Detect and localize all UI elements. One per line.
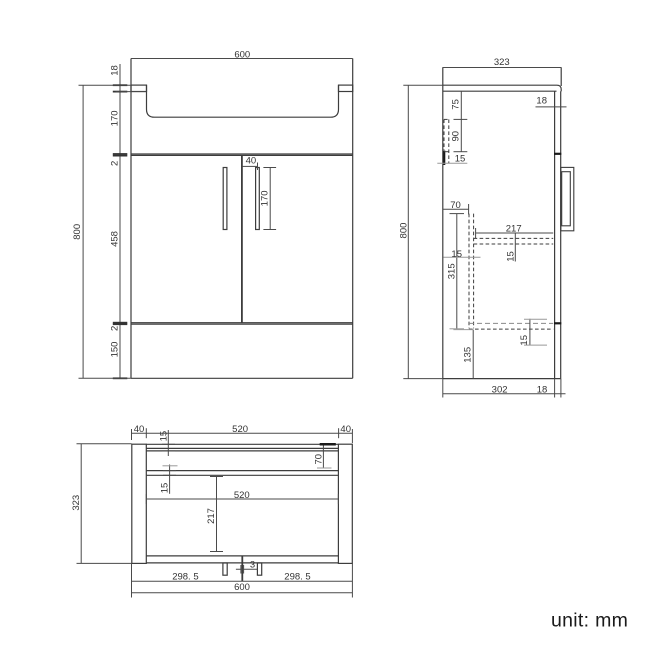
svg-text:15: 15	[506, 251, 517, 262]
svg-text:323: 323	[494, 57, 510, 68]
svg-text:18: 18	[109, 65, 120, 76]
svg-text:3: 3	[250, 560, 255, 571]
svg-text:70: 70	[313, 454, 324, 465]
svg-text:70: 70	[450, 200, 461, 211]
svg-text:600: 600	[234, 582, 250, 593]
svg-text:170: 170	[109, 110, 120, 126]
svg-text:217: 217	[206, 508, 217, 524]
svg-text:298. 5: 298. 5	[172, 571, 198, 582]
svg-text:15: 15	[451, 249, 462, 260]
svg-text:302: 302	[492, 385, 508, 396]
svg-text:15: 15	[455, 153, 466, 164]
svg-text:2: 2	[109, 326, 120, 331]
svg-text:800: 800	[399, 223, 410, 239]
svg-text:unit: mm: unit: mm	[551, 610, 628, 632]
svg-text:315: 315	[446, 263, 457, 279]
svg-text:150: 150	[109, 342, 120, 358]
svg-text:15: 15	[159, 483, 170, 494]
svg-text:520: 520	[234, 490, 250, 501]
svg-text:18: 18	[537, 385, 548, 396]
svg-text:170: 170	[260, 190, 271, 206]
svg-text:40: 40	[246, 156, 257, 167]
svg-text:75: 75	[451, 99, 462, 110]
svg-text:18: 18	[536, 96, 547, 107]
svg-text:90: 90	[451, 131, 462, 142]
svg-text:323: 323	[71, 495, 82, 511]
svg-text:40: 40	[134, 424, 145, 435]
svg-text:135: 135	[462, 347, 473, 363]
svg-text:458: 458	[109, 231, 120, 247]
svg-text:15: 15	[159, 431, 170, 442]
svg-text:298. 5: 298. 5	[284, 571, 310, 582]
svg-text:2: 2	[109, 161, 120, 166]
svg-text:520: 520	[232, 424, 248, 435]
svg-text:800: 800	[72, 224, 83, 240]
svg-text:600: 600	[234, 50, 250, 61]
svg-text:217: 217	[506, 224, 522, 235]
svg-text:15: 15	[519, 335, 530, 346]
svg-text:40: 40	[340, 424, 351, 435]
